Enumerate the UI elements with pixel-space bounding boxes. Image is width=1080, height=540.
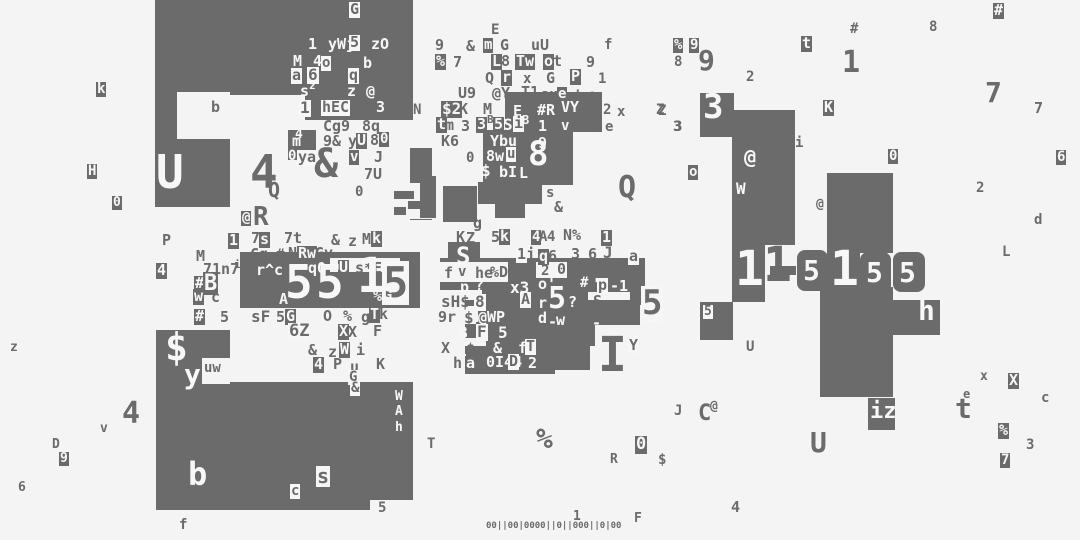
glyph: U [156,148,184,196]
glyph: sF [251,309,270,326]
glyph: 0 [635,436,647,454]
glyph: 5 [641,286,663,322]
gray-block [732,110,795,245]
glyph: @ [710,400,718,414]
glyph: 1 [598,72,606,87]
glyph: 1 [763,240,792,290]
glyph: b [211,100,220,116]
glyph: 5 [866,258,883,287]
glyph: 3 [703,90,723,126]
glyph: VY [561,100,579,116]
glyph: % [435,54,446,70]
glyph: L [519,166,528,182]
glyph: 1 [842,47,860,79]
glyph: % [998,423,1009,439]
glyph: @Y [492,86,510,102]
glyph: d [538,311,547,327]
glyph: W [736,181,746,198]
glyph: U [356,133,367,149]
glyph: i [386,291,394,306]
glyph: q [528,183,537,199]
glyph: x [617,105,625,120]
glyph: c [211,290,220,306]
glyph: v [100,422,108,436]
glyph: 1 [735,244,764,294]
glyph: Q [268,180,280,201]
glyph: w [556,313,565,329]
glyph: & [314,143,338,185]
glyph: Z [658,104,666,119]
glyph: T1 [521,85,539,101]
glyph: j [526,247,535,263]
glyph: k [379,307,388,323]
glyph: 5 [316,258,344,306]
glyph: # [850,22,858,37]
glyph: P [570,69,581,85]
gray-block [820,287,893,397]
glyph: 1 [830,244,859,294]
glyph: 5 [803,256,820,285]
glyph: @ [744,147,756,168]
glyph: f [179,518,187,533]
glyph-noise-canvas: G1yWj5zOM4oba6qszz@1hEC3b4Cg98qm9&yU800y… [0,0,1080,540]
gray-block [394,207,406,215]
glyph: 7 [453,55,462,71]
glyph: 2 [528,356,537,372]
glyph: w [193,289,204,305]
glyph: 5 [220,310,229,326]
glyph: U [746,340,754,355]
glyph: i [356,343,365,359]
glyph: a [465,356,476,372]
light-patch [370,500,413,510]
glyph: 1 [538,119,547,135]
glyph: 5 [285,258,313,306]
glyph: f [604,38,612,53]
glyph: m [483,38,493,53]
glyph: x [980,370,988,384]
glyph: 5 [703,305,713,319]
glyph: % [673,38,683,53]
glyph: 2 [603,103,611,118]
glyph: 4 [547,230,555,245]
glyph: 7 [985,78,1002,107]
glyph: 3 [674,120,682,135]
glyph: 7 [1000,453,1010,468]
glyph: % [373,289,382,305]
glyph: U [810,428,827,457]
glyph: f [444,266,453,282]
glyph: v [561,119,569,134]
glyph: hEC [321,100,350,116]
glyph: X [1008,373,1019,389]
glyph: k [499,229,510,245]
glyph: 5 [548,283,566,315]
glyph: t [955,394,972,423]
glyph: 3 [571,247,580,263]
glyph: c [290,484,300,499]
glyph: o [321,56,331,71]
glyph: 1 [308,37,317,53]
glyph: 3 [461,119,470,135]
glyph: G [349,2,360,18]
glyph: K [823,100,834,116]
glyph: uw [204,361,221,376]
glyph: 9 [59,452,69,466]
glyph: ? [568,295,577,311]
glyph: d [1034,213,1042,228]
glyph: c [1041,391,1049,406]
glyph: zO [371,37,389,53]
glyph: T [525,339,536,355]
glyph: # [194,309,205,325]
glyph: R [253,204,269,231]
glyph: Tw [515,54,535,70]
glyph: K6 [441,134,459,150]
gray-block [394,191,414,199]
glyph: 0 [112,196,122,210]
glyph: b [363,56,372,72]
glyph: $ [481,163,491,180]
glyph: I [598,330,627,380]
glyph: L [1002,245,1010,260]
glyph: 9 [586,55,595,71]
glyph: 0 [466,151,474,166]
glyph: u [506,147,516,162]
glyph: W [395,390,403,404]
glyph: 4 [313,357,324,373]
glyph: $s [245,287,265,305]
glyph: # [580,276,588,291]
glyph: e [605,120,613,135]
glyph: 0 [556,262,567,278]
glyph: & [350,381,360,396]
glyph: @ [816,198,824,212]
gray-block [443,186,477,222]
glyph: 1 [228,233,239,249]
glyph: 3 [1026,438,1034,453]
glyph: D [52,438,60,452]
glyph: Q [618,172,636,204]
glyph: t [553,54,562,70]
glyph: E [491,23,499,38]
glyph: h [395,421,403,435]
glyph: 5 [349,35,360,51]
glyph: Y [628,338,639,354]
glyph: 1 [299,100,311,117]
glyph: bI [499,165,517,181]
gray-block [420,176,436,218]
glyph: 9r [438,310,456,326]
glyph: a [628,249,639,265]
glyph: 4 [122,398,140,430]
glyph: 7U [364,167,382,183]
glyph: K [459,102,468,118]
glyph: F [634,512,642,526]
glyph: 4 [731,500,740,516]
glyph: N [413,103,421,118]
glyph: J [374,150,383,166]
glyph: 9 [698,46,715,75]
glyph: H [87,164,97,179]
glyph: 3 [376,100,385,116]
glyph: & [554,200,563,216]
glyph: 6 [1056,150,1066,165]
glyph: M [362,232,371,248]
glyph: 6 [18,481,26,495]
glyph: A [520,292,531,308]
glyph: P [162,233,171,249]
glyph: 8 [929,20,937,35]
glyph: 3 [476,117,487,133]
glyph: 2 [746,70,754,85]
glyph: @ [366,84,375,100]
glyph: z [348,234,357,250]
glyph: J [674,404,682,419]
glyph: t [801,36,812,52]
glyph: @ [241,211,251,226]
glyph: z [10,341,18,355]
glyph: $ [658,453,666,468]
glyph: K [376,357,385,373]
glyph: 5 [899,258,916,287]
glyph: iz [870,400,897,423]
glyph: X [441,341,450,357]
glyph: 5 [378,501,386,516]
glyph: o [688,165,698,180]
glyph: T [427,437,435,452]
glyph: i [234,259,241,271]
glyph: 2 [976,181,984,196]
glyph: s [316,466,330,487]
glyph: G [546,71,555,87]
glyph: v [349,150,359,165]
glyph: D [508,354,519,370]
glyph: F [476,324,488,341]
glyph: & [466,39,475,55]
glyph: 0 [588,91,596,106]
glyph: 0 [888,149,898,164]
glyph: %D [490,265,508,281]
glyph: 5 [276,310,285,326]
glyph: S [593,294,602,310]
glyph: A [395,405,403,419]
glyph: 6Z [288,323,310,341]
gray-block [230,382,413,510]
glyph: 8 [528,137,548,173]
glyph: 00||00|0000||0||000||0|00 [486,522,621,531]
glyph: z [309,80,316,92]
glyph: 0 [355,185,363,200]
glyph: -1 [610,279,628,295]
glyph: 8 [674,55,682,70]
glyph: O [323,309,332,325]
gray-block [530,345,590,370]
light-patch [177,92,230,139]
glyph: P [333,357,342,373]
glyph: i [795,136,803,151]
glyph: k [371,231,382,247]
glyph: p [219,407,227,422]
glyph: 8 [370,133,379,149]
glyph: 0 [379,132,389,147]
glyph: 7 [1034,101,1043,117]
glyph: y [184,360,201,389]
glyph: h [918,296,935,325]
glyph: B [522,114,529,127]
glyph: F [373,324,382,340]
glyph: % [536,424,553,453]
glyph: N% [563,228,581,244]
glyph: 0 [288,149,296,164]
glyph: 4 [156,263,167,279]
glyph: J [603,245,613,262]
glyph: h [453,356,462,372]
glyph: R [610,453,618,467]
glyph: # [993,3,1004,19]
glyph: X [348,325,357,341]
glyph: b [188,458,207,492]
glyph: k [96,82,106,97]
glyph: H [591,119,600,135]
glyph: 6 [588,247,597,263]
